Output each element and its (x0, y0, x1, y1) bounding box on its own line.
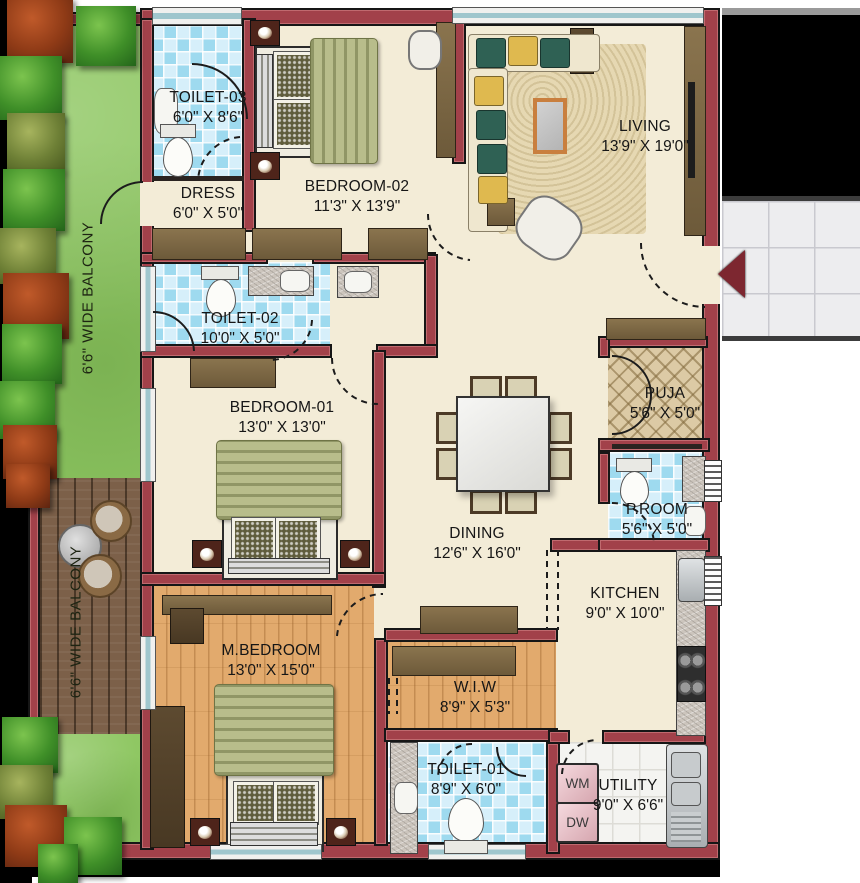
toilet2-right-wall (424, 254, 438, 358)
room-dims: 9'0" X 10'0" (586, 604, 665, 624)
room-label-dining: DINING 12'6" X 16'0" (433, 524, 521, 564)
bedroom2-wardrobe (252, 228, 342, 260)
tree-icon (2, 324, 62, 384)
kitchen-window (704, 556, 722, 606)
tree-icon (6, 464, 50, 508)
dining-chair-icon (505, 490, 537, 514)
tree-icon (76, 6, 136, 66)
sink-icon (280, 270, 310, 292)
tree-icon (7, 113, 65, 171)
washing-machine-label: WM (566, 776, 590, 791)
puja-shelf (612, 444, 702, 449)
room-label-toilet1: TOILET-01 8'9" X 6'0" (427, 760, 504, 800)
room-dims: 13'9" X 19'0" (601, 137, 689, 157)
dishwasher-label: DW (566, 815, 589, 830)
nightstand-icon (340, 540, 370, 568)
bedroom1-window (140, 388, 156, 482)
room-name: TOILET-03 (169, 88, 246, 108)
nightstand-icon (250, 152, 280, 180)
tv-icon (688, 82, 695, 178)
sofa-cushion (476, 110, 506, 140)
room-name: DINING (433, 524, 521, 544)
room-dims: 6'0" X 8'6" (169, 108, 246, 128)
room-label-toilet2: TOILET-02 10'0" X 5'0" (201, 309, 280, 349)
mbedroom-headboard (230, 822, 318, 846)
room-name: BEDROOM-02 (305, 177, 410, 197)
toilet2-window (140, 266, 156, 352)
sofa-cushion (477, 144, 507, 174)
balcony-door-opening (140, 182, 154, 226)
proom-window (704, 460, 722, 502)
balcony-lower-label: 6'6" WIDE BALCONY (68, 546, 85, 699)
dining-chair-icon (470, 490, 502, 514)
bedroom2-headboard (256, 54, 273, 148)
room-label-mbedroom: M.BEDROOM 13'0" X 15'0" (221, 641, 320, 681)
coffee-table-icon (533, 98, 567, 154)
corridor-edge-bottom (722, 336, 860, 341)
proom-left-wall (598, 452, 610, 504)
pillow-icon (274, 782, 318, 824)
room-label-proom: P.ROOM 5'6" X 5'0" (622, 500, 692, 540)
room-dims: 5'6" X 5'0" (622, 520, 692, 540)
toilet-icon (616, 458, 652, 472)
wiw-closet (392, 646, 516, 676)
toilet-icon (444, 840, 488, 854)
entrance-arrow-icon (718, 250, 745, 298)
tree-icon (7, 0, 73, 63)
toilet3-dress-divider (152, 176, 244, 181)
deck-chair-icon (90, 500, 132, 542)
foyer-shoe-cabinet (606, 318, 706, 340)
bottom-shadow (32, 858, 720, 877)
tree-icon (3, 169, 65, 231)
balcony-upper-label: 6'6" WIDE BALCONY (80, 222, 97, 375)
room-dims: 8'9" X 6'0" (427, 780, 504, 800)
room-dims: 13'0" X 13'0" (230, 418, 335, 438)
dining-chair-icon (548, 448, 572, 480)
utility-basin (671, 782, 701, 806)
room-label-toilet3: TOILET-03 6'0" X 8'6" (169, 88, 246, 128)
mbedroom-wardrobe (150, 706, 185, 848)
kitchen-sink-icon (678, 558, 705, 602)
toilet3-window (152, 7, 242, 25)
nightstand-icon (192, 540, 222, 568)
utility-top-wall-a (548, 730, 570, 744)
sink-icon (344, 271, 372, 293)
utility-basin (671, 752, 701, 778)
room-name: UTILITY (593, 776, 663, 796)
tree-icon (0, 56, 62, 120)
room-name: BEDROOM-01 (230, 398, 335, 418)
bedroom2-blanket (310, 38, 378, 164)
stove-icon (677, 646, 706, 702)
room-name: KITCHEN (586, 584, 665, 604)
nightstand-icon (190, 818, 220, 846)
toilet-icon (201, 266, 239, 280)
utility-drainboard (671, 812, 701, 842)
toilet-icon (163, 137, 193, 177)
room-dims: 9'0" X 6'6" (593, 796, 663, 816)
hall-cabinet (368, 228, 428, 260)
mbedroom-blanket (214, 684, 334, 776)
room-label-bedroom2: BEDROOM-02 11'3" X 13'9" (305, 177, 410, 217)
room-label-dress: DRESS 6'0" X 5'0" (173, 184, 243, 224)
room-name: TOILET-02 (201, 309, 280, 329)
room-dims: 10'0" X 5'0" (201, 329, 280, 349)
room-label-living: LIVING 13'9" X 19'0" (601, 117, 689, 157)
room-label-kitchen: KITCHEN 9'0" X 10'0" (586, 584, 665, 624)
room-label-utility: UTILITY 9'0" X 6'6" (593, 776, 663, 816)
sofa-cushion (474, 76, 504, 106)
bedroom1-headboard (228, 558, 330, 574)
bedroom2-chair-icon (408, 30, 442, 70)
room-name: PUJA (630, 384, 700, 404)
room-label-puja: PUJA 5'6" X 5'0" (630, 384, 700, 424)
dining-sideboard (420, 606, 518, 634)
room-name: DRESS (173, 184, 243, 204)
room-name: LIVING (601, 117, 689, 137)
floor-plan: WM DW TOILET-03 6'0" (0, 0, 860, 883)
sofa-cushion (540, 38, 570, 68)
bedroom1-right-wall (372, 350, 386, 588)
top-right-bar (722, 8, 860, 15)
corridor-edge-top (722, 196, 860, 201)
toilet-icon (448, 798, 484, 842)
mbedroom-stool (170, 608, 204, 644)
dress-wardrobe (152, 228, 246, 260)
room-label-bedroom1: BEDROOM-01 13'0" X 13'0" (230, 398, 335, 438)
room-name: W.I.W (440, 678, 510, 698)
dining-chair-icon (548, 412, 572, 444)
sink-icon (394, 782, 418, 814)
wiw-bottom-wall (384, 728, 558, 742)
proom-counter (682, 456, 706, 502)
room-label-wiw: W.I.W 8'9" X 5'3" (440, 678, 510, 718)
mbedroom-bottom-window (210, 844, 322, 860)
room-dims: 6'0" X 5'0" (173, 204, 243, 224)
living-window (452, 7, 704, 24)
room-dims: 8'9" X 5'3" (440, 698, 510, 718)
room-name: TOILET-01 (427, 760, 504, 780)
tree-icon (38, 844, 78, 883)
room-name: P.ROOM (622, 500, 692, 520)
bedroom1-blanket (216, 440, 342, 520)
nightstand-icon (326, 818, 356, 846)
dining-table-icon (456, 396, 550, 492)
room-dims: 13'0" X 15'0" (221, 661, 320, 681)
nightstand-icon (250, 20, 280, 46)
top-right-backdrop (722, 15, 860, 197)
mbedroom-window (140, 636, 156, 710)
mbedroom-right-wall (374, 638, 388, 846)
room-dims: 5'6" X 5'0" (630, 404, 700, 424)
sofa-cushion (476, 38, 506, 68)
sofa-cushion (508, 36, 538, 66)
room-dims: 12'6" X 16'0" (433, 544, 521, 564)
bedroom1-dresser (190, 358, 276, 388)
room-dims: 11'3" X 13'9" (305, 197, 410, 217)
deck-chair-icon (78, 554, 122, 598)
pillow-icon (234, 782, 278, 824)
sofa-cushion (478, 176, 508, 204)
room-name: M.BEDROOM (221, 641, 320, 661)
